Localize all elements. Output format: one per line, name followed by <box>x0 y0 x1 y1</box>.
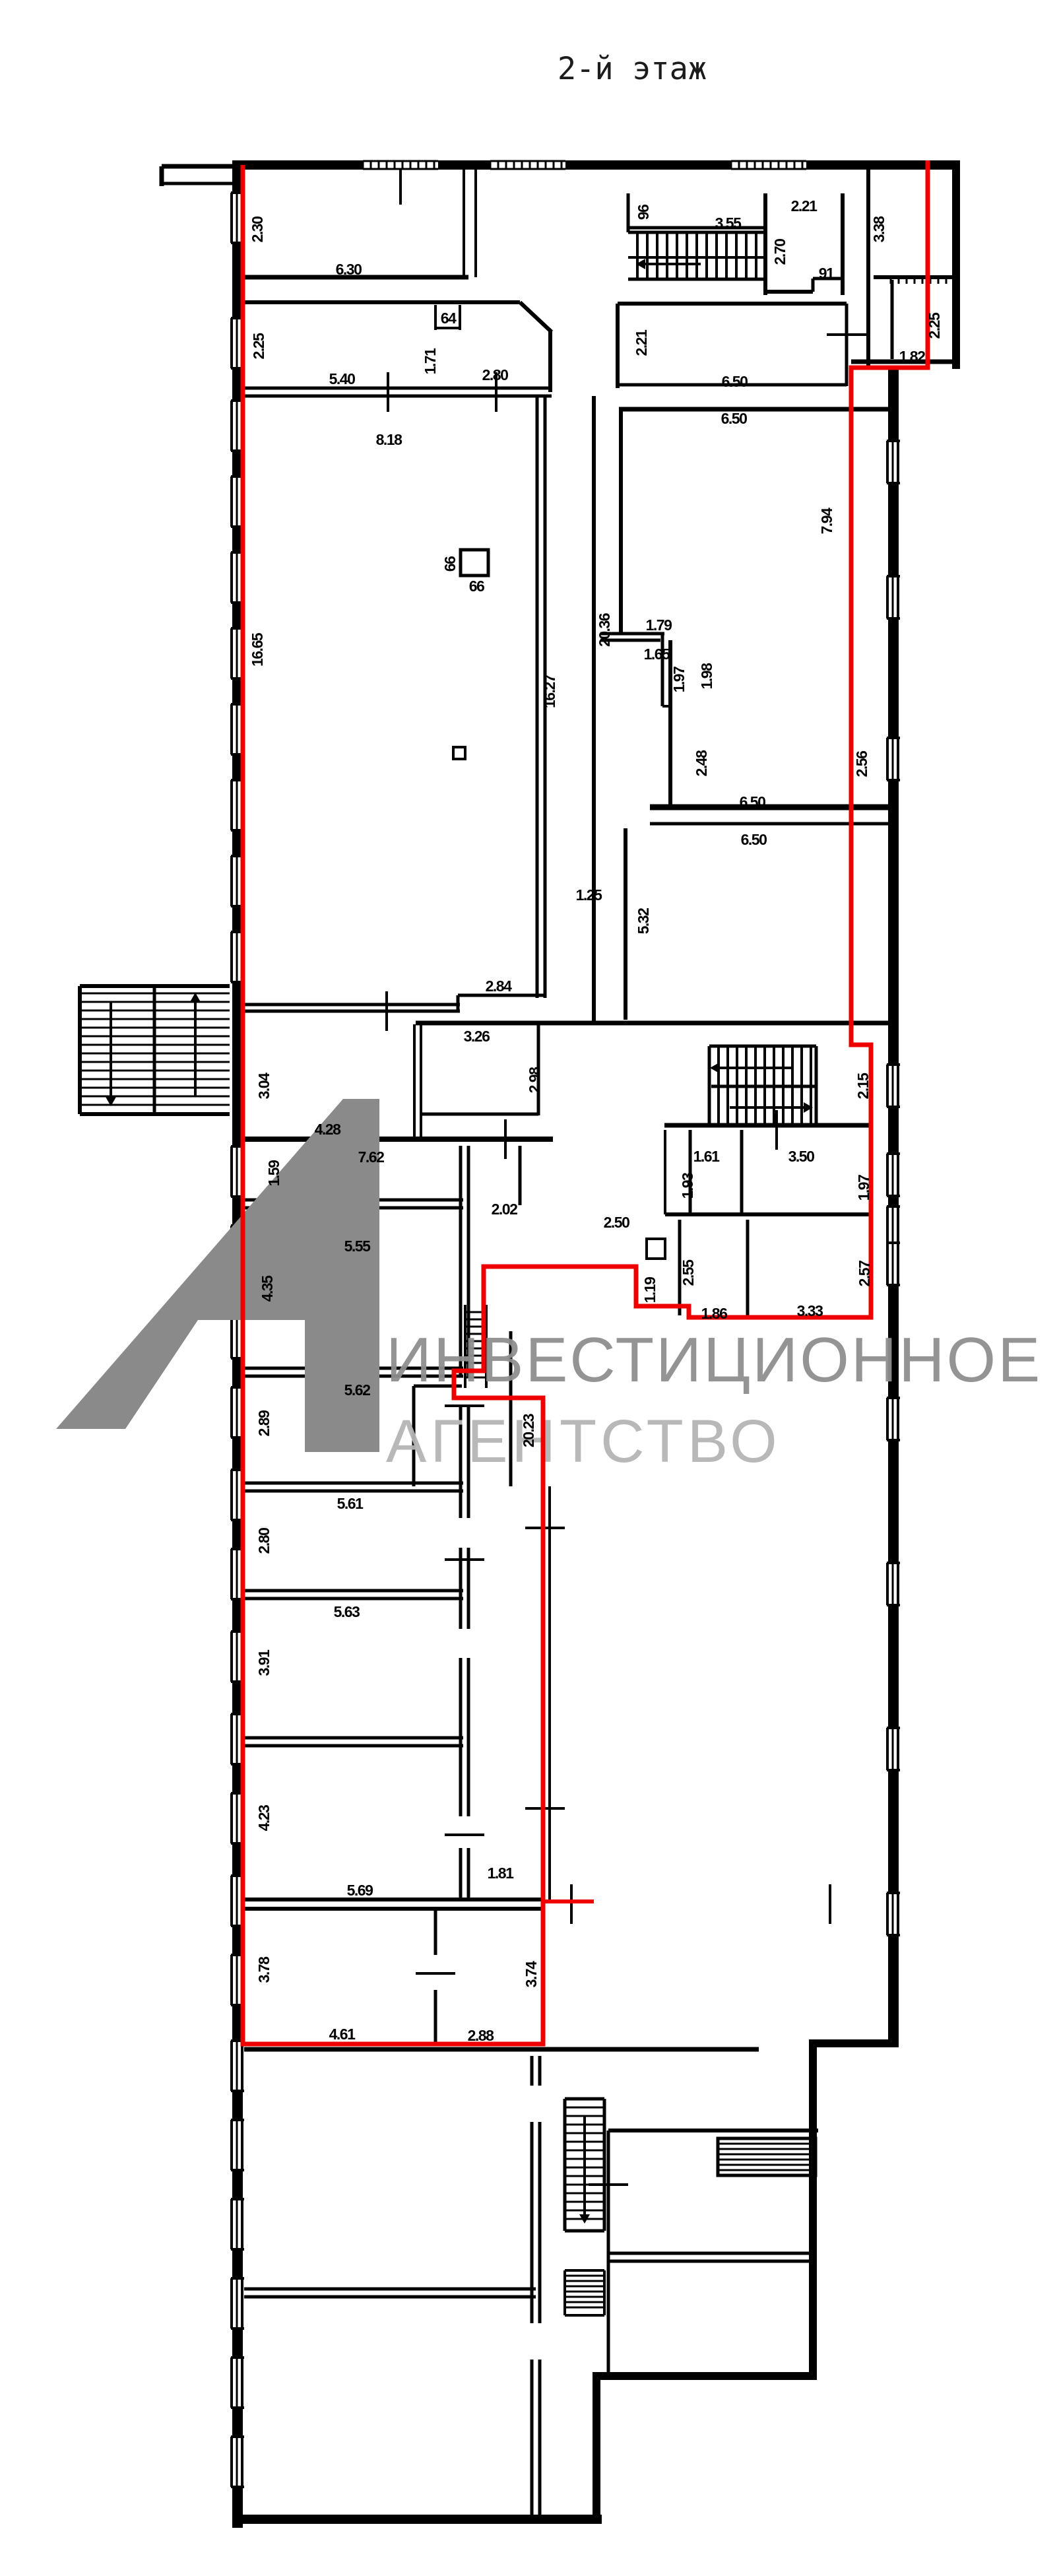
dimension-label: 3.38 <box>870 216 887 242</box>
dimension-label: 2.48 <box>693 750 710 776</box>
dimension-label: 2.80 <box>255 1528 273 1554</box>
dimension-label: 5.62 <box>344 1381 370 1399</box>
dimension-label: 96 <box>635 205 652 220</box>
dimension-label: 2.25 <box>250 333 267 359</box>
dimension-label: 2.02 <box>492 1201 517 1218</box>
dimension-label: 4.61 <box>329 2026 356 2043</box>
dimension-label: 2.56 <box>853 751 870 777</box>
dimension-label: 2.84 <box>486 977 512 995</box>
dimension-label: 4.35 <box>259 1275 276 1302</box>
dimension-label: 1.86 <box>701 1305 727 1322</box>
dimension-label: 4.23 <box>255 1805 273 1831</box>
dimension-label: 3.50 <box>788 1148 814 1165</box>
dimension-label: 2.88 <box>468 2027 494 2044</box>
dimension-label: 3.91 <box>255 1649 273 1676</box>
dimension-label: 4.28 <box>315 1121 341 1138</box>
dimension-label: 16.27 <box>541 675 558 708</box>
dimension-label: 66 <box>441 556 459 572</box>
watermark-line2: АГЕНТСТВО <box>386 1408 781 1475</box>
dimension-label: 5.32 <box>635 908 652 934</box>
dimension-label: 2.89 <box>255 1410 273 1436</box>
page-title: 2-й этаж <box>558 51 707 87</box>
dimension-label: 5.63 <box>334 1603 360 1620</box>
dimension-label: 2.21 <box>633 329 650 356</box>
dimension-label: 2.50 <box>604 1214 629 1231</box>
dimension-label: 2.55 <box>680 1259 697 1286</box>
dimension-label: 1.59 <box>265 1160 282 1186</box>
dimension-label: 3.74 <box>523 1961 540 1987</box>
dimension-label: 3.04 <box>255 1073 273 1099</box>
dimension-label: 91 <box>819 265 835 282</box>
dimension-label: 1.97 <box>670 667 688 692</box>
dimension-label: 2.30 <box>249 216 266 242</box>
dimension-label: 3.55 <box>715 215 742 232</box>
dimension-label: 1.93 <box>679 1173 696 1199</box>
dimension-label: 8.18 <box>376 431 402 448</box>
dimension-label: 20.36 <box>596 613 613 647</box>
dimension-label: 1.97 <box>855 1175 872 1201</box>
dimension-label: 5.55 <box>344 1238 371 1255</box>
dimension-label: 16.65 <box>249 632 266 667</box>
dimension-label: 6.50 <box>740 793 765 810</box>
dimension-label: 7.94 <box>818 508 835 534</box>
dimension-label: 5.69 <box>347 1882 373 1899</box>
dimension-label: 2.25 <box>926 312 943 339</box>
dimension-label: 1.61 <box>693 1148 720 1165</box>
dimension-label: 6.30 <box>336 261 362 278</box>
dimension-label: 66 <box>469 578 484 595</box>
dimension-label: 64 <box>441 310 457 327</box>
dimension-label: 2.98 <box>526 1067 543 1093</box>
dimension-label: 5.40 <box>329 370 355 387</box>
dimension-label: 3.33 <box>797 1302 823 1319</box>
floor-plan-drawing: 2-й этаж ИНВЕСТИЦИОННОЕ АГЕНТСТВО 2.306.… <box>0 0 1059 2576</box>
dimension-label: 2.80 <box>482 366 508 383</box>
dimension-label: 1.65 <box>644 645 670 663</box>
floor-plan-page: 2-й этаж ИНВЕСТИЦИОННОЕ АГЕНТСТВО 2.306.… <box>0 0 1059 2576</box>
dimension-label: 1.98 <box>698 663 715 689</box>
dimension-label: 6.50 <box>721 410 747 427</box>
dimension-label: 6.50 <box>741 831 767 848</box>
dimension-label: 1.79 <box>646 616 672 634</box>
dimension-label: 1.82 <box>899 348 925 365</box>
dimension-label: 2.70 <box>771 239 788 265</box>
dimension-label: 2.21 <box>791 197 818 215</box>
dimension-label: 3.26 <box>464 1028 490 1045</box>
dimension-label: 2.15 <box>854 1073 872 1099</box>
dimension-label: 1.81 <box>488 1865 514 1882</box>
agency-logo-icon <box>56 1099 379 1452</box>
dimension-label: 3.78 <box>255 1956 273 1983</box>
dimension-label: 5.61 <box>337 1495 364 1512</box>
dimension-label: 2.57 <box>856 1261 873 1286</box>
dimension-label: 1.71 <box>422 348 439 374</box>
dimension-label: 6.50 <box>722 373 748 390</box>
dimension-label: 20.23 <box>520 1414 537 1447</box>
dimension-label: 1.25 <box>576 886 602 904</box>
dimension-label: 1.19 <box>641 1277 658 1303</box>
dimension-label: 7.62 <box>358 1148 384 1166</box>
